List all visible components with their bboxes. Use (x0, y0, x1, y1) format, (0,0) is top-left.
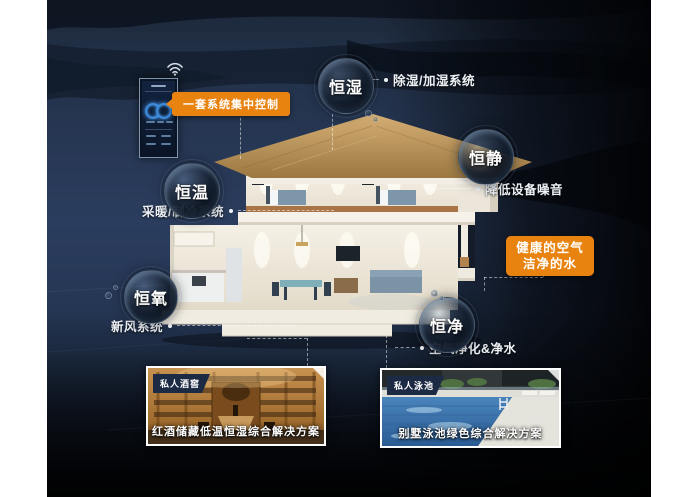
mini-bubble (113, 285, 118, 290)
infographic-canvas: 一套系统集中控制 健康的空气 洁净的水 恒湿 恒静 恒温 恒氧 恒净 除湿/加湿… (0, 0, 700, 497)
health-badge-line2: 洁净的水 (510, 256, 590, 272)
smart-home-infographic: 一套系统集中控制 健康的空气 洁净的水 恒湿 恒静 恒温 恒氧 恒净 除湿/加湿… (47, 0, 651, 497)
connector-line (425, 188, 471, 189)
smart-control-panel (139, 78, 178, 158)
panel-title-bar (151, 85, 166, 87)
bubble-purity-label: 恒净 (430, 313, 464, 337)
mini-bubble (373, 117, 378, 122)
connector-line (386, 335, 387, 368)
connector-line (307, 338, 308, 366)
control-panel-screen (142, 81, 175, 155)
photo-pool: 私人泳池 别墅泳池绿色综合解决方案 (380, 368, 561, 448)
panel-stat (146, 135, 156, 137)
mini-bubble (431, 290, 438, 297)
panel-divider (145, 91, 172, 92)
bubble-quiet: 恒静 (458, 129, 514, 185)
bubble-oxygen-label: 恒氧 (134, 285, 168, 309)
connector-line (332, 114, 333, 150)
bubble-purity: 恒净 (419, 297, 475, 353)
mini-bubble (365, 110, 372, 117)
mini-bubble (439, 296, 444, 301)
health-badge-line1: 健康的空气 (510, 240, 590, 256)
bullet-dot (229, 209, 233, 213)
photo-corner-ribbon (548, 370, 559, 381)
panel-stat (146, 143, 156, 145)
bubble-humidity-label: 恒湿 (329, 74, 363, 98)
photo-caption-pool: 别墅泳池绿色综合解决方案 (382, 425, 559, 441)
panel-divider (145, 129, 172, 130)
bubble-temperature: 恒温 (164, 163, 220, 219)
mini-bubble (105, 292, 112, 299)
connector-line (177, 325, 297, 326)
photo-corner-ribbon (313, 368, 324, 379)
photo-tag-pool: 私人泳池 (387, 376, 444, 395)
photo-wine-cellar: 私人酒窖 红酒储藏低温恒湿综合解决方案 (146, 366, 326, 446)
connector-line (240, 113, 241, 159)
bubble-quiet-label: 恒静 (469, 145, 503, 169)
panel-stat (161, 135, 171, 137)
callout-humidity: 除湿/加湿系统 (369, 70, 475, 89)
bubble-temperature-label: 恒温 (175, 179, 209, 203)
central-control-badge-label: 一套系统集中控制 (183, 99, 279, 111)
connector-line (484, 277, 543, 278)
callout-humidity-text: 除湿/加湿系统 (393, 70, 475, 89)
connector-line (484, 277, 485, 291)
healthy-air-water-badge: 健康的空气 洁净的水 (506, 236, 594, 276)
bubble-oxygen: 恒氧 (124, 270, 178, 324)
bullet-dot (384, 78, 388, 82)
panel-stat (161, 143, 171, 145)
connector-line (247, 338, 307, 339)
panel-readout (146, 121, 155, 123)
bullet-dot (168, 324, 172, 328)
connector-line (238, 210, 334, 211)
bubble-humidity: 恒湿 (318, 58, 374, 114)
photo-tag-wine: 私人酒窖 (153, 374, 210, 393)
central-control-badge: 一套系统集中控制 (172, 92, 290, 116)
wifi-icon (166, 61, 184, 76)
connector-line (395, 347, 415, 348)
photo-caption-wine: 红酒储藏低温恒湿综合解决方案 (148, 423, 324, 439)
panel-readout (166, 121, 173, 123)
panel-readout (157, 121, 164, 123)
